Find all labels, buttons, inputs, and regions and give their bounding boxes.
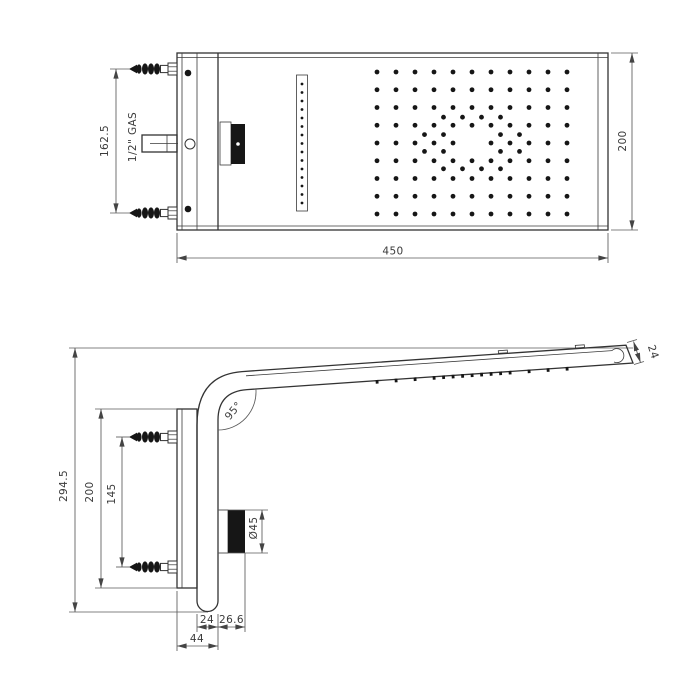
spray-hole-offset bbox=[441, 166, 446, 171]
spray-hole bbox=[394, 194, 399, 199]
spray-hole bbox=[527, 123, 532, 128]
spray-hole bbox=[527, 176, 532, 181]
spray-hole bbox=[413, 105, 418, 110]
spray-hole bbox=[508, 176, 513, 181]
spray-hole-offset bbox=[498, 115, 503, 120]
spray-hole bbox=[432, 87, 437, 92]
spray-hole-offset bbox=[498, 166, 503, 171]
dim-arm-end-thickness-label: 24 bbox=[645, 343, 661, 360]
spray-hole bbox=[527, 158, 532, 163]
spray-hole bbox=[508, 158, 513, 163]
spray-hole bbox=[470, 70, 475, 75]
spray-hole-offset bbox=[498, 132, 503, 137]
arm-nozzle bbox=[414, 377, 417, 381]
slot-hole bbox=[301, 193, 304, 196]
spray-hole bbox=[432, 194, 437, 199]
arm-nozzle bbox=[442, 375, 445, 379]
hose-connector-side-view-2 bbox=[129, 561, 177, 573]
spray-hole-offset bbox=[460, 166, 465, 171]
spray-hole bbox=[470, 212, 475, 217]
spray-hole bbox=[565, 70, 570, 75]
spray-hole bbox=[508, 212, 513, 217]
dim-tip24-line bbox=[634, 342, 641, 363]
spray-hole bbox=[470, 176, 475, 181]
spray-hole bbox=[451, 141, 456, 146]
spray-hole bbox=[432, 123, 437, 128]
spray-hole bbox=[489, 212, 494, 217]
spray-hole bbox=[546, 123, 551, 128]
spray-hole bbox=[413, 123, 418, 128]
spray-hole bbox=[375, 87, 380, 92]
arm-inner-line bbox=[246, 351, 612, 376]
spray-hole bbox=[489, 158, 494, 163]
dim-plate-height-label: 200 bbox=[84, 481, 96, 502]
spray-hole-grid bbox=[375, 70, 570, 217]
spray-hole bbox=[413, 87, 418, 92]
arm-nozzle bbox=[471, 373, 474, 377]
arm-nozzle bbox=[461, 374, 464, 378]
slot-hole bbox=[301, 100, 304, 103]
spray-hole bbox=[413, 70, 418, 75]
spray-hole bbox=[375, 105, 380, 110]
slot-hole bbox=[301, 142, 304, 145]
arm-nozzle bbox=[490, 372, 493, 376]
dim-body-depth-label: 24 bbox=[200, 614, 214, 626]
spray-hole bbox=[451, 158, 456, 163]
spray-hole bbox=[432, 141, 437, 146]
spray-hole-offset bbox=[441, 132, 446, 137]
dim-tip24-ext-bottom bbox=[634, 362, 644, 365]
spray-hole-offset bbox=[441, 115, 446, 120]
spray-hole bbox=[489, 105, 494, 110]
spray-hole bbox=[489, 141, 494, 146]
slot-hole bbox=[301, 168, 304, 171]
spray-hole bbox=[546, 141, 551, 146]
spray-hole bbox=[413, 141, 418, 146]
spray-hole bbox=[375, 123, 380, 128]
spray-hole bbox=[546, 212, 551, 217]
diverter-knob-side-view bbox=[228, 510, 245, 553]
spray-hole-offset bbox=[479, 115, 484, 120]
spray-hole bbox=[432, 212, 437, 217]
dim-overall-height-label: 294.5 bbox=[58, 470, 70, 502]
arm-nozzle bbox=[499, 371, 502, 375]
spray-hole-offset bbox=[422, 149, 427, 154]
drawing-canvas: 1/2" GAS 162.5 450 200 bbox=[0, 0, 700, 700]
spray-hole-offset bbox=[441, 149, 446, 154]
spray-hole bbox=[546, 105, 551, 110]
spray-hole bbox=[470, 87, 475, 92]
hose-connector-top-view-2 bbox=[129, 207, 177, 219]
slot-hole bbox=[301, 159, 304, 162]
spray-hole-offset bbox=[479, 166, 484, 171]
slot-hole bbox=[301, 125, 304, 128]
inlet-thread-label: 1/2" GAS bbox=[127, 112, 139, 162]
diverter-base-top-view bbox=[220, 122, 231, 165]
spray-hole bbox=[394, 141, 399, 146]
arm-nozzle bbox=[433, 376, 436, 380]
spray-hole bbox=[451, 212, 456, 217]
dim-connector-spacing-side-view: 145 bbox=[106, 483, 118, 504]
body-profile bbox=[197, 345, 633, 611]
spray-hole bbox=[375, 141, 380, 146]
spray-hole bbox=[451, 176, 456, 181]
spray-hole-offset bbox=[517, 149, 522, 154]
spray-hole bbox=[432, 70, 437, 75]
slot-hole bbox=[301, 185, 304, 188]
arm-top-detail-2 bbox=[575, 345, 584, 348]
spray-hole bbox=[489, 194, 494, 199]
spray-hole bbox=[413, 176, 418, 181]
spray-hole bbox=[489, 70, 494, 75]
spray-hole bbox=[527, 105, 532, 110]
hose-connector-top-view-1 bbox=[129, 63, 177, 75]
spray-hole bbox=[546, 158, 551, 163]
spray-hole bbox=[508, 123, 513, 128]
spray-hole bbox=[508, 70, 513, 75]
slot-hole bbox=[301, 91, 304, 94]
diverter-base-side-view bbox=[218, 510, 228, 553]
spray-hole bbox=[527, 70, 532, 75]
spray-hole bbox=[394, 158, 399, 163]
spray-hole bbox=[546, 70, 551, 75]
dim-bend-angle-label: 95° bbox=[223, 400, 245, 423]
spray-hole bbox=[432, 105, 437, 110]
dim-depth-label: 200 bbox=[617, 130, 629, 151]
wall-plate bbox=[177, 409, 197, 588]
arm-nozzle bbox=[528, 369, 531, 373]
spray-hole bbox=[470, 194, 475, 199]
spray-hole bbox=[394, 212, 399, 217]
spray-hole bbox=[546, 87, 551, 92]
slot-hole bbox=[301, 202, 304, 205]
spray-hole bbox=[375, 70, 380, 75]
spray-hole bbox=[470, 105, 475, 110]
spray-hole-offset bbox=[498, 149, 503, 154]
spray-hole bbox=[451, 70, 456, 75]
spray-hole-offset bbox=[517, 132, 522, 137]
arm-nozzle bbox=[566, 367, 569, 371]
spray-hole bbox=[375, 194, 380, 199]
spray-hole bbox=[413, 158, 418, 163]
spray-hole bbox=[527, 212, 532, 217]
arm-nozzle bbox=[452, 375, 455, 379]
spray-hole bbox=[432, 176, 437, 181]
spray-hole bbox=[451, 123, 456, 128]
spray-hole bbox=[546, 176, 551, 181]
slot-hole bbox=[301, 134, 304, 137]
spray-hole bbox=[451, 87, 456, 92]
spray-hole bbox=[565, 212, 570, 217]
spray-hole bbox=[432, 158, 437, 163]
shower-head-dimension-drawing: 1/2" GAS 162.5 450 200 bbox=[0, 0, 700, 700]
spray-hole bbox=[375, 158, 380, 163]
spray-hole bbox=[413, 194, 418, 199]
spray-hole bbox=[489, 87, 494, 92]
spray-hole bbox=[394, 105, 399, 110]
arm-tip-inner-curve bbox=[612, 349, 624, 363]
dim-connector-spacing-top-view: 162.5 bbox=[99, 125, 111, 157]
spray-hole bbox=[565, 87, 570, 92]
arm-nozzle bbox=[547, 368, 550, 372]
arm-nozzle bbox=[509, 371, 512, 375]
spray-hole bbox=[527, 141, 532, 146]
spray-hole bbox=[413, 212, 418, 217]
slot-holes bbox=[301, 83, 304, 205]
spray-hole bbox=[375, 212, 380, 217]
spray-hole bbox=[565, 158, 570, 163]
spray-hole bbox=[508, 141, 513, 146]
spray-hole bbox=[546, 194, 551, 199]
spray-hole bbox=[394, 70, 399, 75]
spray-hole bbox=[527, 87, 532, 92]
dim-knob-diameter-label: Ø45 bbox=[248, 517, 260, 540]
spray-hole-offset bbox=[460, 115, 465, 120]
slot-hole bbox=[301, 176, 304, 179]
slot-hole bbox=[301, 108, 304, 111]
spray-hole bbox=[394, 87, 399, 92]
dim-knob-protrusion-label: 26.6 bbox=[219, 614, 244, 626]
spray-hole bbox=[451, 194, 456, 199]
spray-hole bbox=[565, 105, 570, 110]
mounting-screw-top bbox=[185, 70, 192, 77]
hose-connector-side-view-1 bbox=[129, 431, 177, 443]
spray-hole bbox=[527, 194, 532, 199]
arm-nozzle bbox=[376, 380, 379, 384]
mounting-screw-bottom bbox=[185, 206, 192, 213]
spray-hole bbox=[470, 158, 475, 163]
dim-tip24-ext-top bbox=[627, 340, 637, 343]
arm-top-detail-1 bbox=[498, 350, 507, 353]
spray-hole bbox=[565, 176, 570, 181]
arm-nozzle bbox=[395, 379, 398, 383]
spray-hole bbox=[451, 105, 456, 110]
top-view: 1/2" GAS 162.5 450 200 bbox=[99, 53, 638, 263]
dim-total-depth-label: 44 bbox=[190, 633, 204, 645]
arm-nozzle bbox=[480, 373, 483, 377]
spray-hole bbox=[508, 194, 513, 199]
spray-hole-offset bbox=[422, 132, 427, 137]
spray-hole bbox=[508, 105, 513, 110]
spray-hole bbox=[508, 87, 513, 92]
spray-hole bbox=[489, 123, 494, 128]
spray-hole bbox=[565, 141, 570, 146]
spray-hole bbox=[565, 123, 570, 128]
spray-hole bbox=[470, 123, 475, 128]
spray-hole bbox=[375, 176, 380, 181]
center-hole bbox=[185, 139, 195, 149]
spray-hole bbox=[489, 176, 494, 181]
slot-hole bbox=[301, 117, 304, 120]
spray-hole bbox=[394, 123, 399, 128]
spray-hole bbox=[565, 194, 570, 199]
dim-width-label: 450 bbox=[382, 246, 403, 258]
spray-hole bbox=[394, 176, 399, 181]
slot-hole bbox=[301, 151, 304, 154]
diverter-knob-dot bbox=[236, 142, 240, 146]
side-view: 294.5 200 145 95° Ø45 24 26.6 44 bbox=[58, 340, 661, 652]
slot-hole bbox=[301, 83, 304, 86]
